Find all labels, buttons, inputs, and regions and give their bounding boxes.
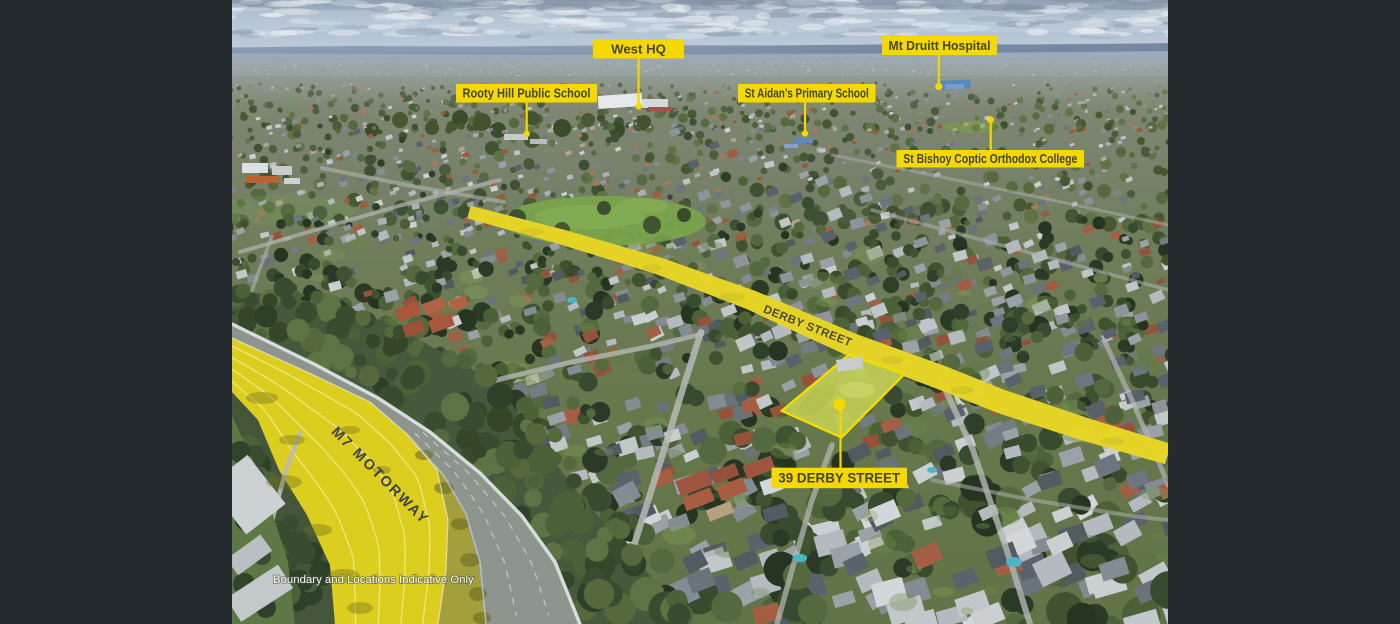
svg-text:St Bishoy Coptic Orthodox Coll: St Bishoy Coptic Orthodox College: [903, 152, 1077, 166]
svg-text:Boundary and Locations Indicat: Boundary and Locations Indicative Only: [273, 574, 474, 586]
svg-text:Rooty Hill Public School: Rooty Hill Public School: [463, 86, 591, 101]
svg-text:Mt Druitt Hospital: Mt Druitt Hospital: [889, 38, 991, 53]
svg-text:West HQ: West HQ: [611, 42, 666, 57]
svg-text:St Aidan’s Primary School: St Aidan’s Primary School: [745, 86, 869, 101]
svg-text:39 DERBY STREET: 39 DERBY STREET: [778, 471, 901, 486]
